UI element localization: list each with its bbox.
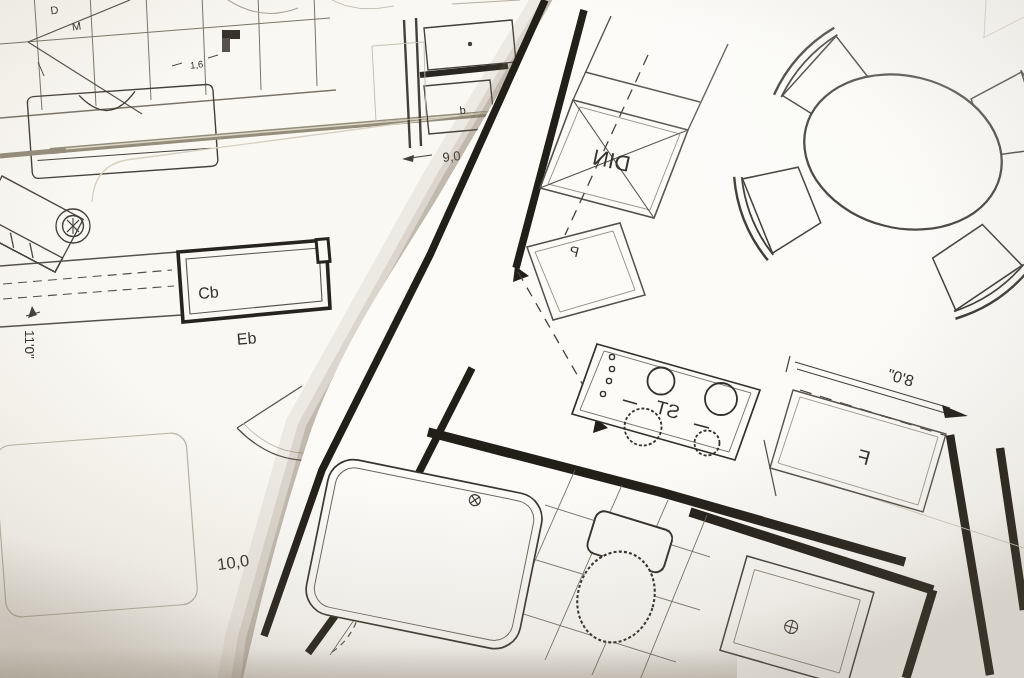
blueprint-photo-svg: D M 1,6	[0, 0, 1024, 678]
wall-stub-dark-2	[222, 38, 230, 52]
blueprint-photo: D M 1,6	[0, 0, 1024, 678]
dim-small-label: 1,6	[189, 58, 203, 70]
wall-stub-dark	[222, 30, 240, 39]
mark-d-label: D	[50, 4, 60, 17]
mark-m-label: M	[71, 19, 82, 32]
closet-eb-label: Eb	[236, 329, 257, 348]
dim-side-label: 11'0"	[22, 330, 37, 359]
wall-end-cap	[316, 239, 330, 263]
closet-cb-label: Cb	[198, 283, 220, 302]
